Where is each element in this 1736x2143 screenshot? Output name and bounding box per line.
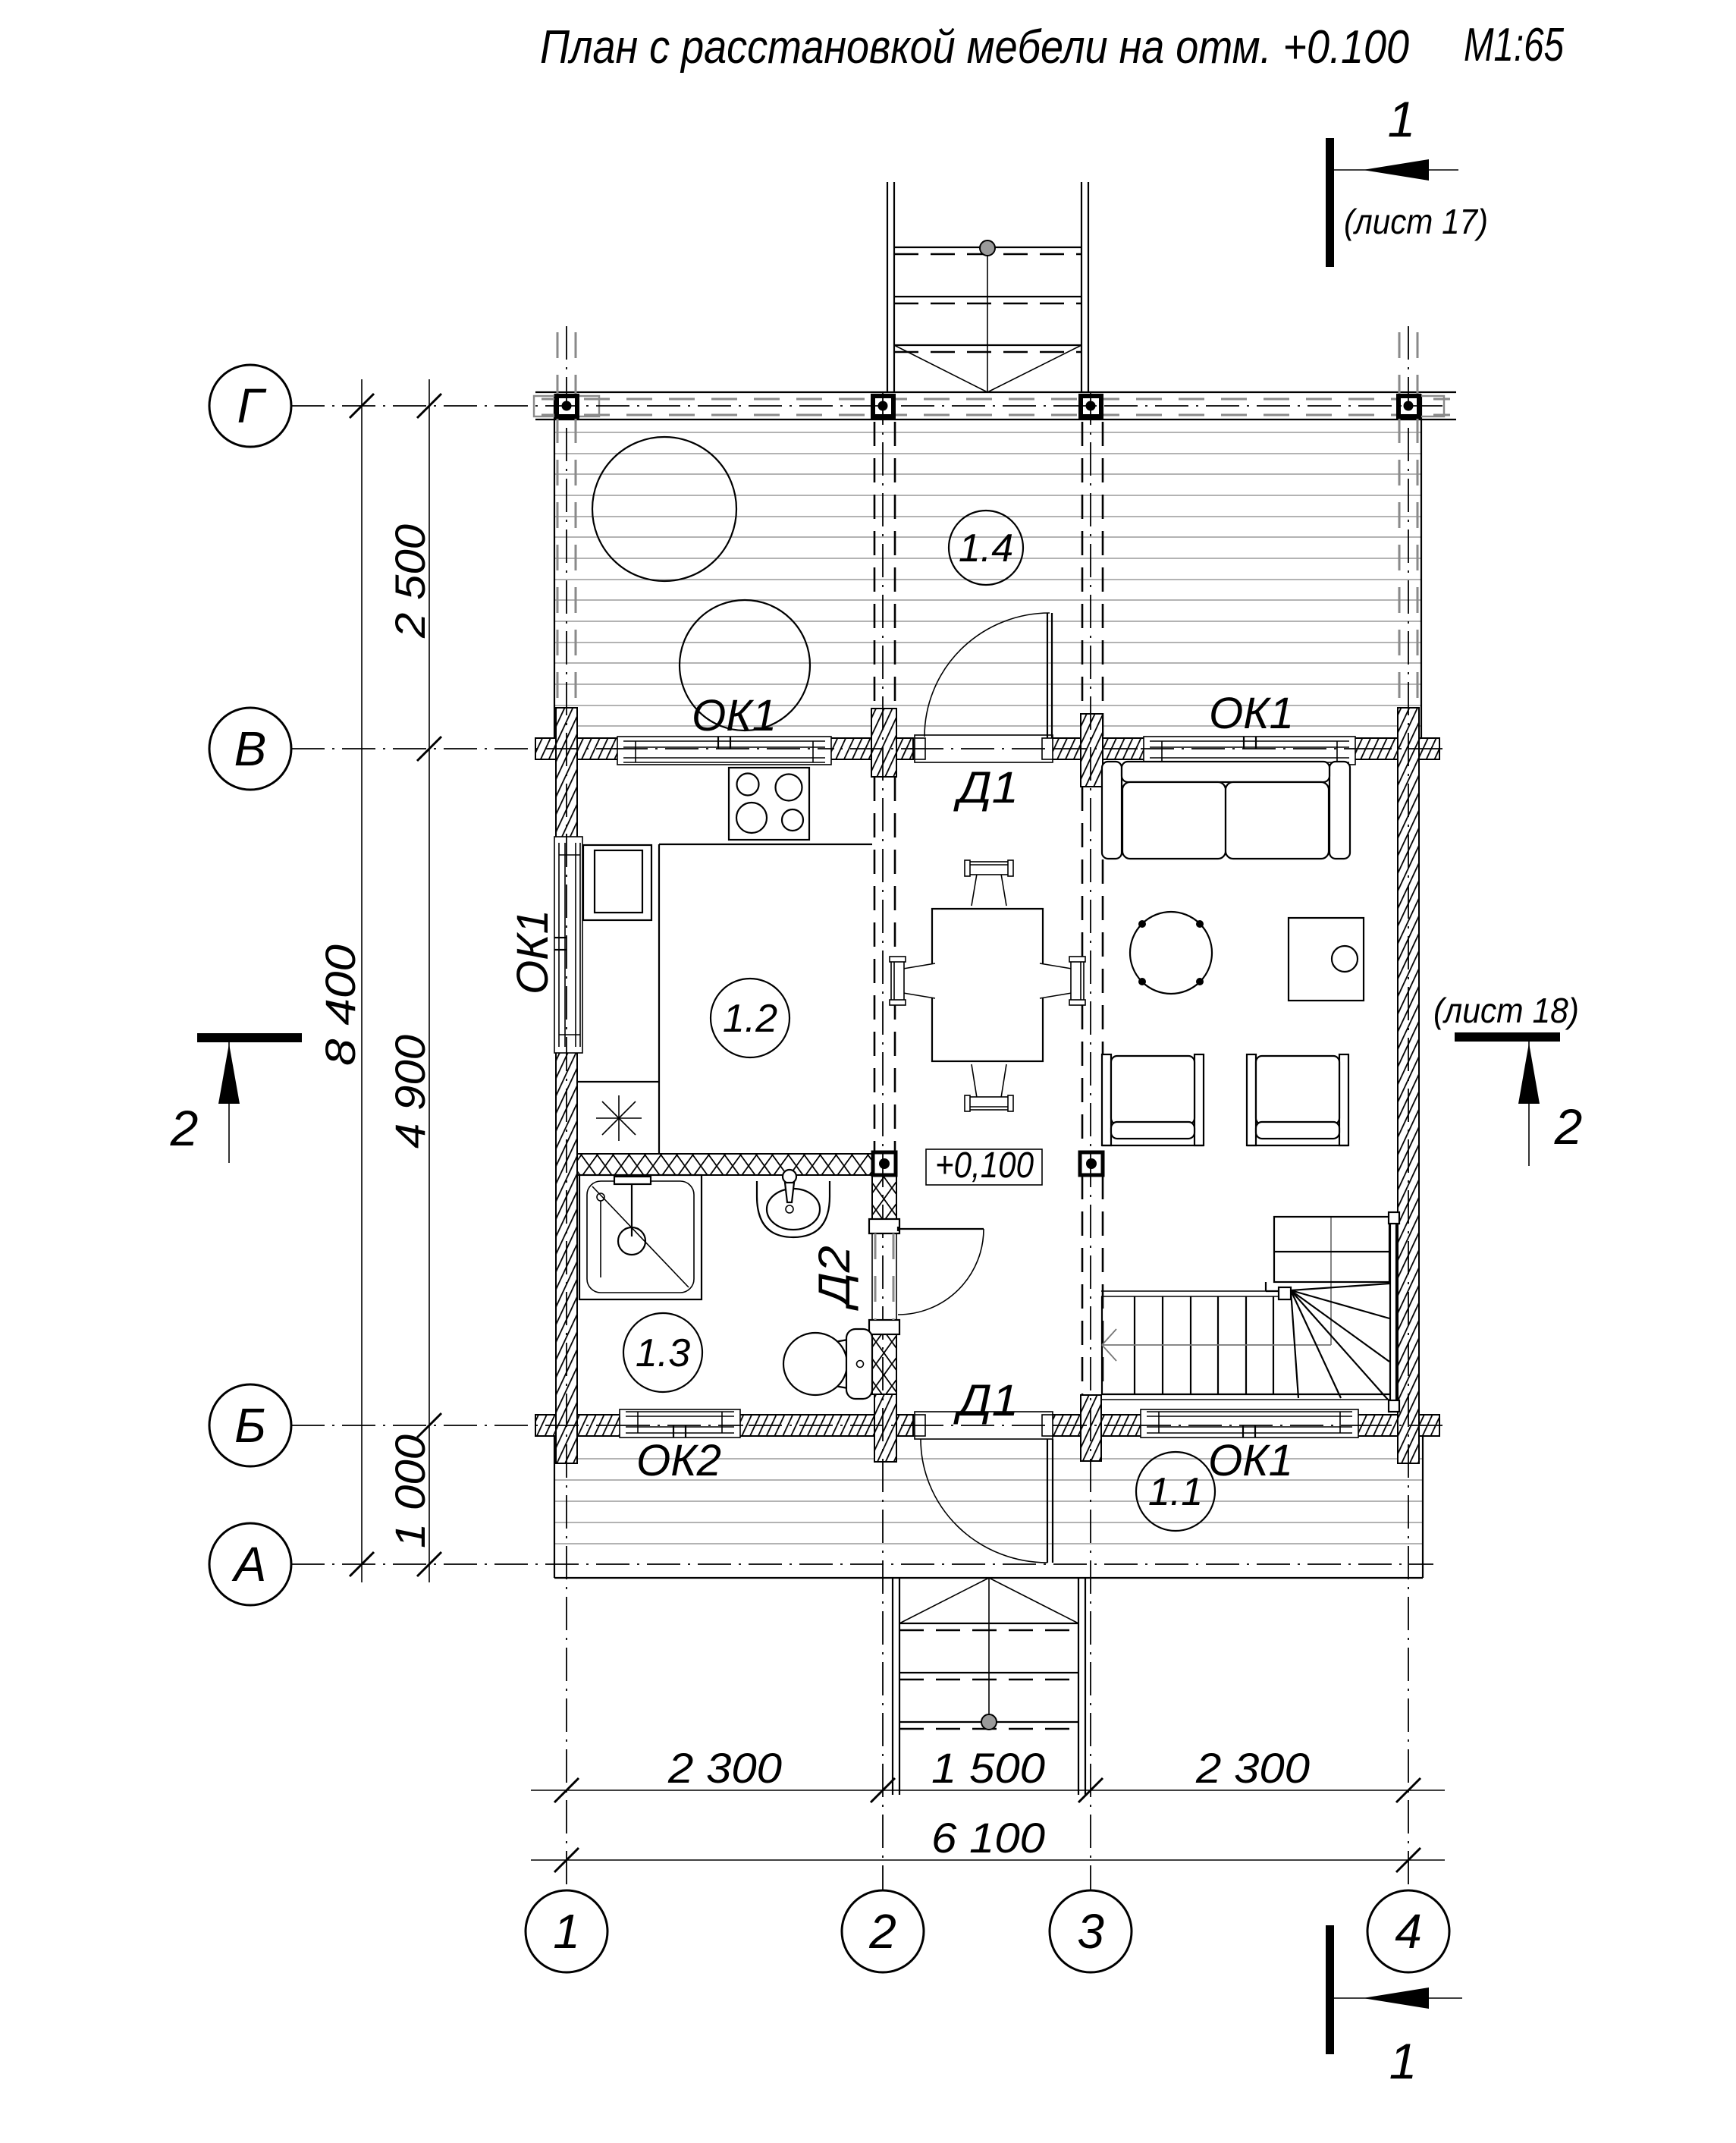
svg-text:ОК2: ОК2 <box>636 1436 721 1485</box>
svg-text:2 500: 2 500 <box>386 524 434 639</box>
svg-text:Д1: Д1 <box>953 1376 1019 1425</box>
svg-text:Б: Б <box>234 1398 266 1453</box>
svg-text:4 900: 4 900 <box>386 1035 434 1148</box>
svg-text:1 000: 1 000 <box>386 1434 434 1548</box>
svg-text:2 300: 2 300 <box>1195 1744 1310 1792</box>
svg-text:ОК1: ОК1 <box>1209 689 1294 738</box>
svg-text:(лист 18): (лист 18) <box>1433 991 1579 1030</box>
svg-text:Д2: Д2 <box>810 1246 859 1312</box>
svg-text:2: 2 <box>170 1100 199 1156</box>
svg-text:2 300: 2 300 <box>667 1744 782 1792</box>
svg-text:4: 4 <box>1395 1904 1422 1959</box>
svg-text:А: А <box>231 1537 267 1592</box>
svg-text:+0,100: +0,100 <box>935 1145 1034 1186</box>
svg-text:2: 2 <box>868 1904 896 1959</box>
svg-text:8 400: 8 400 <box>316 944 364 1066</box>
svg-text:План с расстановкой мебели на: План с расстановкой мебели на отм. +0.10… <box>540 21 1409 74</box>
svg-text:1.1: 1.1 <box>1148 1470 1203 1514</box>
svg-text:(лист 17): (лист 17) <box>1344 202 1488 241</box>
svg-text:М1:65: М1:65 <box>1464 19 1564 71</box>
svg-text:1: 1 <box>1388 91 1416 147</box>
svg-text:6 100: 6 100 <box>931 1814 1045 1862</box>
svg-text:Г: Г <box>237 379 267 433</box>
svg-text:3: 3 <box>1077 1904 1104 1959</box>
svg-text:1: 1 <box>1389 2033 1417 2089</box>
svg-text:В: В <box>234 721 267 776</box>
svg-text:ОК1: ОК1 <box>692 691 777 740</box>
svg-text:ОК1: ОК1 <box>1208 1436 1293 1485</box>
svg-text:2: 2 <box>1554 1098 1583 1155</box>
svg-text:1: 1 <box>553 1904 580 1959</box>
svg-text:1.3: 1.3 <box>636 1331 690 1375</box>
svg-text:1.2: 1.2 <box>723 997 777 1041</box>
svg-text:1 500: 1 500 <box>931 1744 1045 1792</box>
svg-text:Д1: Д1 <box>953 763 1019 812</box>
svg-text:1.4: 1.4 <box>959 526 1013 570</box>
svg-text:ОК1: ОК1 <box>508 910 557 995</box>
